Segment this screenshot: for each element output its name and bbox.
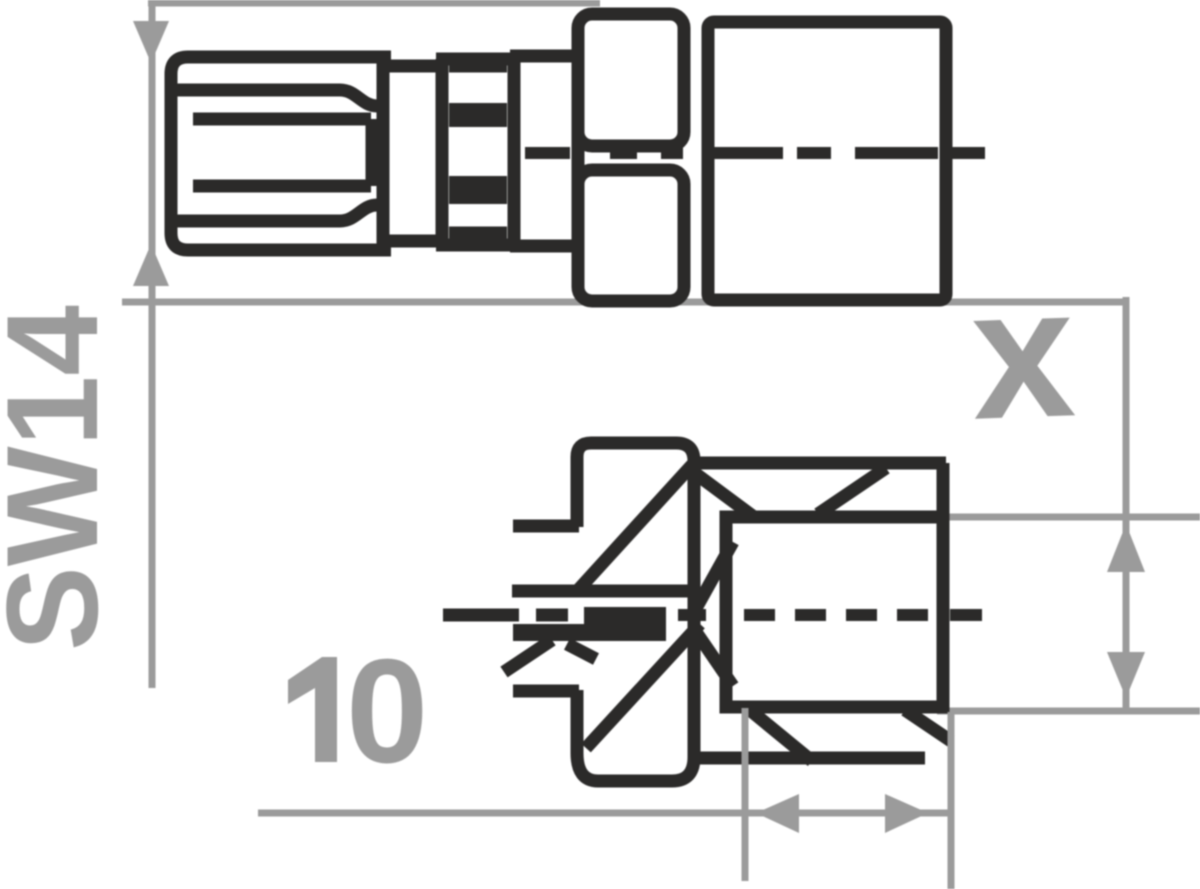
svg-text:0: 0 (346, 629, 428, 794)
svg-text:SW14: SW14 (0, 305, 125, 651)
svg-text:x: x (968, 249, 1078, 458)
